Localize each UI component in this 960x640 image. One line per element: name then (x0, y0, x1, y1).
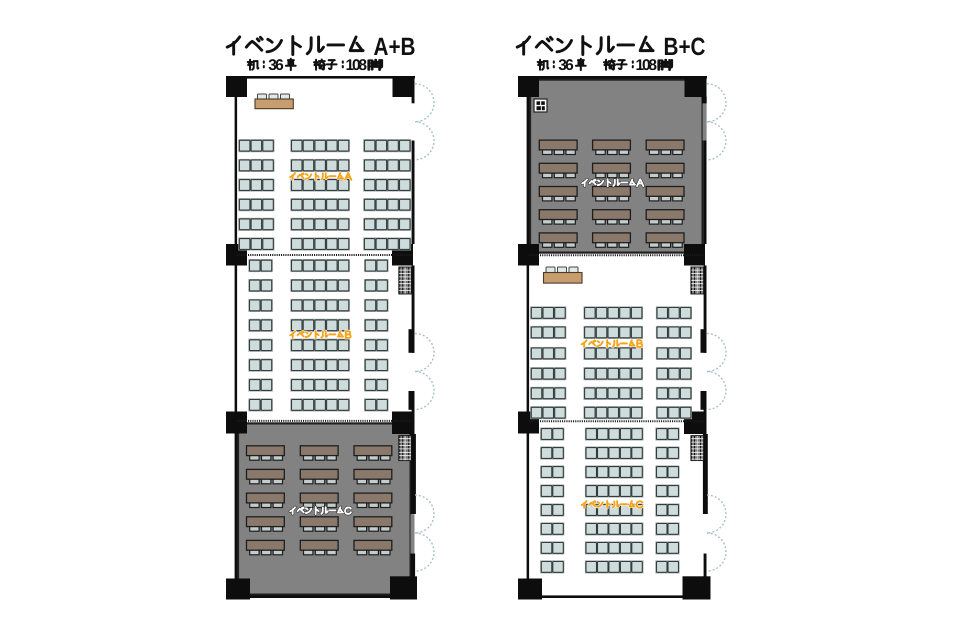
svg-text:B+C: B+C (664, 33, 706, 61)
svg-text:108: 108 (346, 57, 368, 74)
svg-text:108: 108 (636, 57, 658, 74)
svg-text:36: 36 (558, 57, 574, 74)
svg-text:36: 36 (268, 57, 284, 74)
svg-text:A+B: A+B (374, 33, 416, 61)
